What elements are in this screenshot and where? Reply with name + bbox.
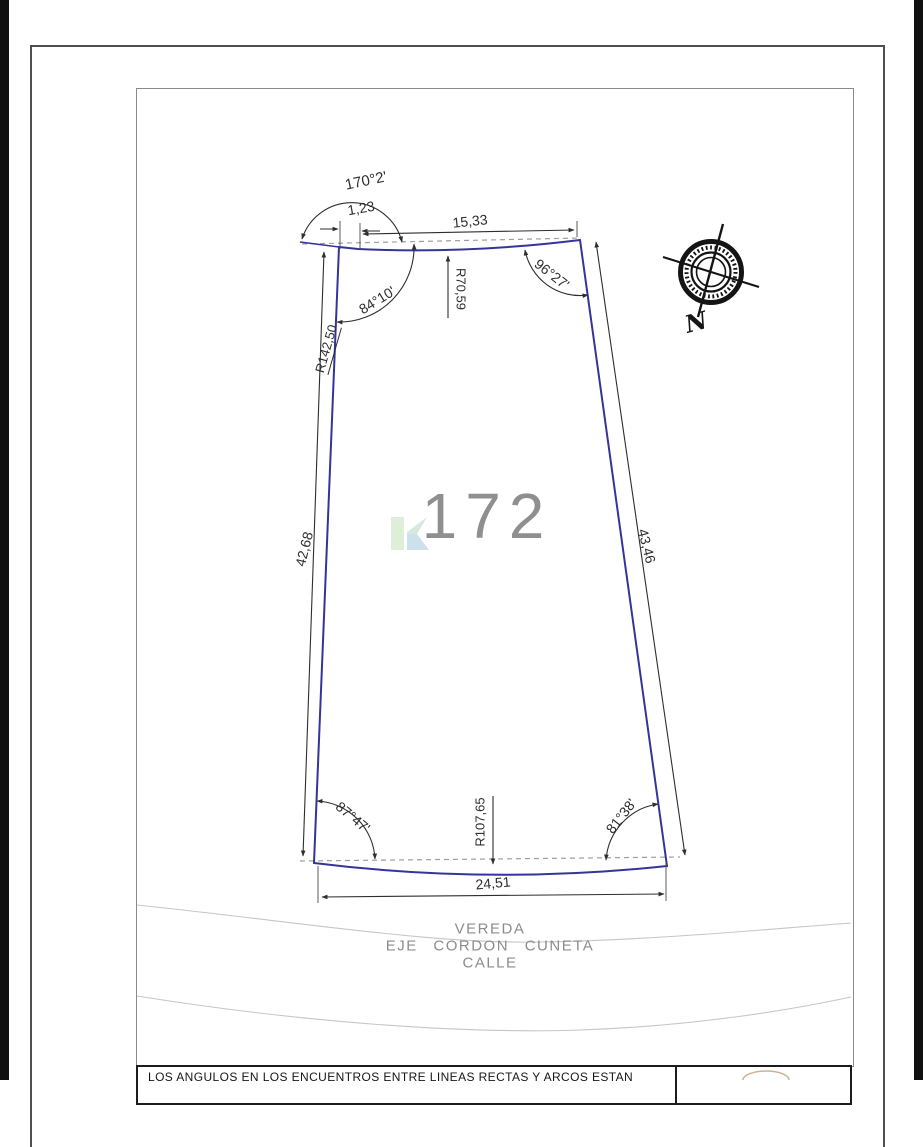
lot-boundary bbox=[314, 240, 667, 875]
title-block-note: LOS ANGULOS EN LOS ENCUENTROS ENTRE LINE… bbox=[148, 1070, 675, 1084]
street-label-calle: CALLE bbox=[462, 955, 517, 972]
compass-rose bbox=[663, 224, 759, 317]
title-block-logo-cell bbox=[677, 1067, 850, 1103]
radius-label-top: R70,59 bbox=[454, 268, 469, 310]
dim-label-bottom: 24,51 bbox=[475, 874, 511, 893]
lot-number: 172 bbox=[422, 479, 553, 553]
street-label-eje-cordon-cuneta: EJE CORDON CUNETA bbox=[386, 938, 595, 955]
radius-label-bottom: R107,65 bbox=[473, 797, 488, 846]
title-block: LOS ANGULOS EN LOS ENCUENTROS ENTRE LINE… bbox=[136, 1065, 852, 1105]
title-block-note-cell: LOS ANGULOS EN LOS ENCUENTROS ENTRE LINE… bbox=[138, 1067, 677, 1103]
street-label-vereda: VEREDA bbox=[455, 921, 526, 938]
extension-lines bbox=[318, 221, 666, 903]
